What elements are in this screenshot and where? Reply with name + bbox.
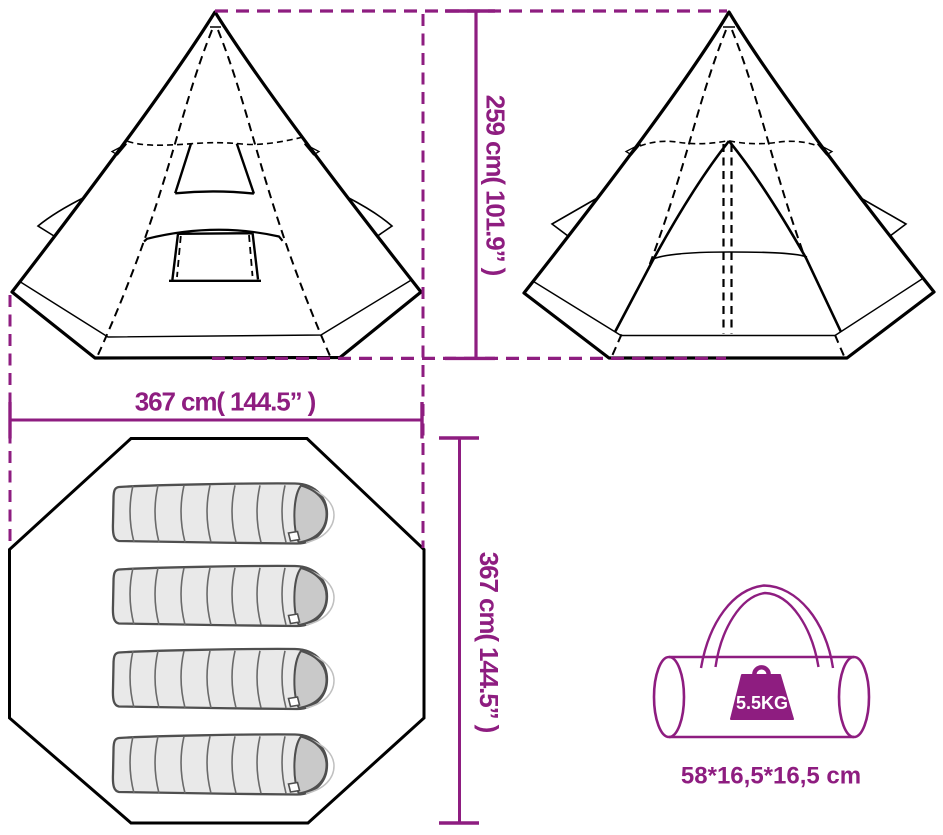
svg-text:259 cm( 101.9” ): 259 cm( 101.9” ) xyxy=(481,95,511,276)
svg-text:367 cm( 144.5” ): 367 cm( 144.5” ) xyxy=(474,552,504,733)
svg-text:367 cm( 144.5” ): 367 cm( 144.5” ) xyxy=(135,387,316,417)
svg-text:5.5KG: 5.5KG xyxy=(736,693,788,713)
svg-text:58*16,5*16,5 cm: 58*16,5*16,5 cm xyxy=(681,763,861,790)
